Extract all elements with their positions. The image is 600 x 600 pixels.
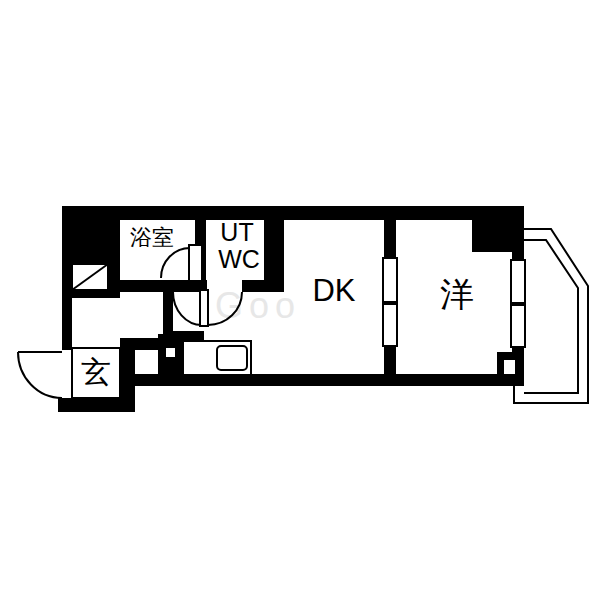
window-panel-top bbox=[511, 260, 525, 303]
wall-entrance-bottom bbox=[58, 398, 135, 412]
floor-plan-svg: Goo 浴室 UT WC bbox=[0, 0, 600, 600]
room-label-dining-kitchen: DK bbox=[312, 273, 355, 308]
room-label-entrance: 玄 bbox=[81, 355, 111, 388]
bathroom-door-arc bbox=[161, 248, 190, 278]
wall-utwc-right bbox=[264, 220, 284, 292]
hall-door-leaf bbox=[200, 290, 208, 326]
kitchen-block-dot bbox=[166, 348, 175, 357]
room-label-bathroom: 浴室 bbox=[130, 225, 174, 250]
wall-top bbox=[62, 206, 524, 220]
wall-left bbox=[62, 206, 72, 350]
entrance-door-arc bbox=[18, 352, 62, 398]
bathroom-door-leaf bbox=[189, 245, 202, 281]
hall-door-arc bbox=[173, 292, 202, 325]
entrance-doorway bbox=[62, 350, 72, 398]
floor-plan-page: Goo 浴室 UT WC bbox=[0, 0, 600, 600]
room-label-western-room: 洋 bbox=[440, 275, 474, 313]
balcony-inner-outline bbox=[524, 240, 578, 393]
room-label-utility: UT bbox=[220, 218, 253, 246]
sliding-door-panel-top bbox=[383, 258, 397, 302]
wall-hall-nook bbox=[163, 292, 173, 334]
kitchen-sink bbox=[217, 346, 247, 370]
room-label-toilet: WC bbox=[218, 245, 260, 273]
window-panel-bottom bbox=[511, 305, 525, 347]
bottomright-notch bbox=[504, 360, 515, 374]
sliding-door-panel-bottom bbox=[383, 304, 397, 346]
